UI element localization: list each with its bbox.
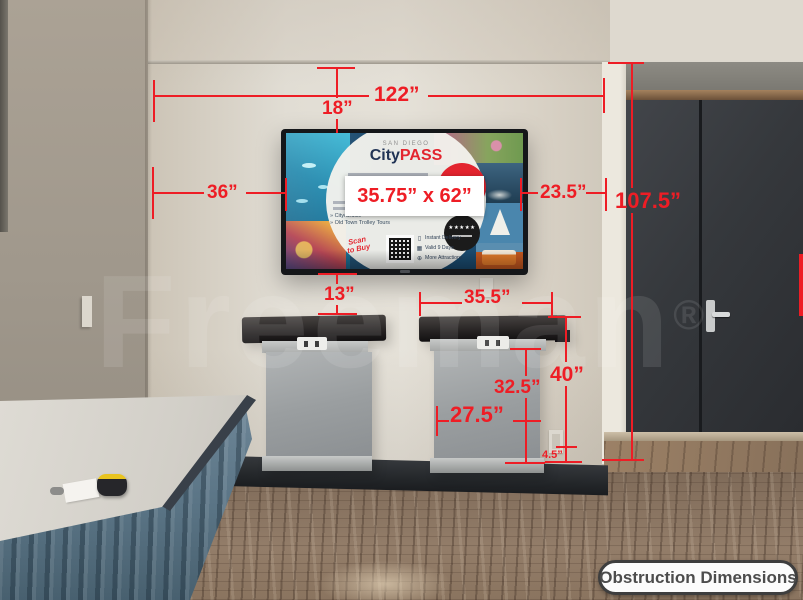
- dim-label-27-5: 27.5”: [450, 404, 504, 426]
- side-wall-edge: [0, 0, 8, 232]
- badge-label: Obstruction Dimensions: [599, 568, 796, 588]
- dim-label-122: 122”: [374, 84, 420, 105]
- dim-line: [586, 192, 606, 194]
- tv-size-callout: 35.75” x 62”: [345, 176, 484, 216]
- registered-mark-icon: ®: [673, 291, 708, 338]
- dim-line: [318, 313, 357, 315]
- dim-line: [556, 446, 577, 448]
- dim-line: [505, 462, 545, 464]
- dim-line: [419, 292, 421, 316]
- watermark-text: Freeman: [95, 248, 673, 395]
- obstruction-dimensions-badge: Obstruction Dimensions: [598, 560, 798, 595]
- upper-wall-band: [148, 0, 610, 62]
- dim-label-13: 13”: [324, 285, 355, 304]
- dim-label-4-5: 4.5”: [542, 450, 563, 461]
- dim-line: [602, 459, 644, 461]
- dim-line: [545, 461, 582, 463]
- light-switch-left-wall: [82, 296, 92, 327]
- door-bronze-trim: [626, 90, 803, 100]
- tv-size-label: 35.75” x 62”: [357, 185, 472, 208]
- dim-line: [525, 350, 527, 376]
- skirted-table: [0, 393, 262, 600]
- dim-line: [551, 292, 553, 316]
- door-threshold: [604, 432, 803, 441]
- dim-line: [565, 318, 567, 362]
- door-transom: [626, 62, 803, 90]
- dim-label-35-5: 35.5”: [464, 288, 510, 307]
- dim-label-23-5: 23.5”: [540, 183, 586, 202]
- dim-line: [525, 398, 527, 464]
- dim-line: [336, 67, 338, 98]
- tape-measure: [97, 474, 127, 496]
- wall-trim: [148, 60, 610, 64]
- annotated-room-photo: SAN DIEGO CityPASS » City/Cruise » Old T…: [0, 0, 803, 600]
- dim-line: [520, 178, 522, 211]
- dim-line: [428, 95, 604, 97]
- dim-line: [421, 302, 462, 304]
- dim-label-40: 40”: [550, 364, 584, 385]
- dim-line: [154, 192, 204, 194]
- dim-line: [522, 192, 538, 194]
- dim-label-36: 36”: [207, 183, 238, 202]
- dim-label-107-5: 107.5”: [615, 190, 681, 212]
- dim-label-18: 18”: [322, 99, 353, 118]
- freeman-watermark: Freeman®: [95, 246, 708, 397]
- dim-line: [513, 420, 541, 422]
- dim-line: [631, 213, 633, 459]
- dim-line: [336, 275, 338, 284]
- dim-line: [631, 62, 633, 188]
- counter-base: [262, 456, 372, 471]
- dim-line: [153, 80, 155, 122]
- dim-line: [246, 192, 286, 194]
- dim-line: [522, 302, 552, 304]
- dim-line: [799, 254, 803, 316]
- dim-line: [285, 178, 287, 211]
- dim-line: [565, 386, 567, 461]
- dim-line: [608, 62, 644, 64]
- keys: [50, 487, 64, 495]
- dim-line: [603, 78, 605, 113]
- door-handle: [712, 312, 730, 317]
- dim-line: [438, 420, 449, 422]
- dim-label-32-5: 32.5”: [494, 378, 540, 397]
- dim-line: [336, 119, 338, 133]
- dim-line: [605, 178, 607, 211]
